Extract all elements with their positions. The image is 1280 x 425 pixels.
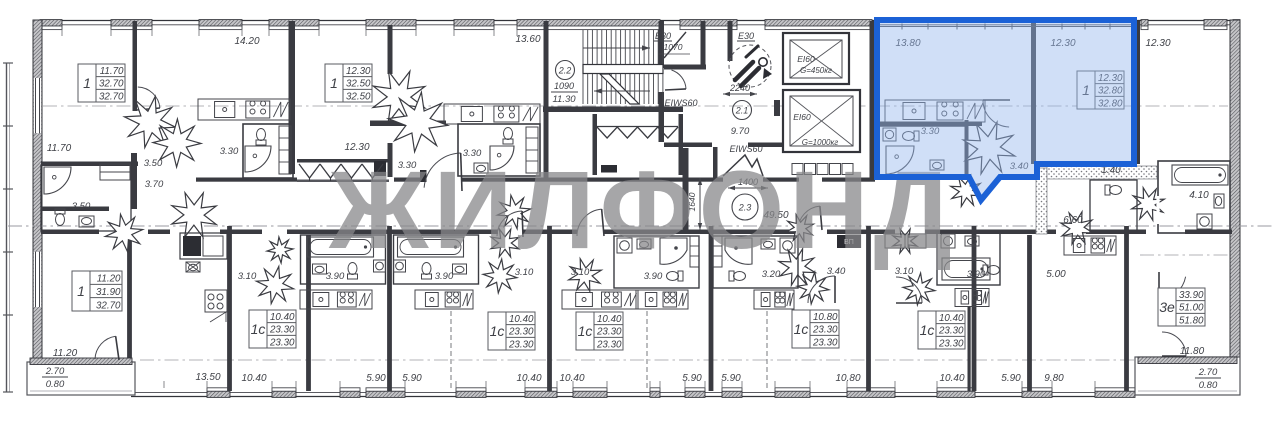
svg-text:ЕІ60: ЕІ60	[793, 112, 811, 122]
svg-text:5.90: 5.90	[366, 373, 386, 384]
svg-text:3.90: 3.90	[326, 271, 345, 282]
svg-text:10.80: 10.80	[835, 373, 860, 384]
svg-text:Е30: Е30	[655, 31, 671, 41]
svg-text:11.20: 11.20	[53, 348, 78, 359]
svg-text:11.20: 11.20	[97, 274, 121, 285]
svg-text:3.90: 3.90	[644, 271, 663, 282]
svg-text:23.30: 23.30	[938, 338, 964, 349]
svg-text:2.70: 2.70	[1198, 367, 1218, 378]
svg-text:23.30: 23.30	[596, 327, 622, 338]
svg-text:12.30: 12.30	[1145, 38, 1170, 49]
svg-text:1: 1	[77, 283, 85, 299]
svg-text:1090: 1090	[554, 81, 574, 91]
svg-text:23.30: 23.30	[938, 326, 964, 337]
svg-text:23.30: 23.30	[508, 327, 534, 338]
svg-text:10.40: 10.40	[516, 373, 541, 384]
svg-text:10.40: 10.40	[509, 314, 534, 325]
svg-text:23.30: 23.30	[508, 339, 534, 350]
svg-text:32.70: 32.70	[99, 79, 124, 90]
svg-text:5.90: 5.90	[682, 373, 702, 384]
svg-text:23.30: 23.30	[812, 337, 838, 348]
svg-text:2.70: 2.70	[45, 366, 65, 377]
svg-text:5.90: 5.90	[721, 373, 741, 384]
svg-text:ЖИЛФОНД: ЖИЛФОНД	[328, 149, 957, 272]
svg-text:1с: 1с	[794, 321, 809, 337]
svg-text:23.30: 23.30	[269, 325, 295, 336]
svg-text:3.90: 3.90	[967, 269, 986, 280]
svg-text:2240: 2240	[729, 83, 750, 93]
svg-text:23.30: 23.30	[596, 339, 622, 350]
svg-text:1: 1	[330, 75, 338, 91]
svg-text:11.70: 11.70	[100, 66, 124, 77]
svg-text:10.80: 10.80	[813, 312, 838, 323]
svg-text:51.00: 51.00	[1179, 303, 1204, 314]
svg-text:51.80: 51.80	[1179, 315, 1204, 326]
svg-text:11.30: 11.30	[552, 94, 576, 105]
svg-text:5.90: 5.90	[1001, 373, 1021, 384]
svg-text:ЕІ60: ЕІ60	[797, 54, 815, 64]
svg-text:10.40: 10.40	[939, 313, 964, 324]
svg-text:10.40: 10.40	[597, 314, 622, 325]
svg-text:3.70: 3.70	[145, 179, 164, 190]
svg-text:31.90: 31.90	[96, 287, 121, 298]
svg-text:0.80: 0.80	[1199, 380, 1218, 391]
svg-text:3е: 3е	[1159, 299, 1175, 315]
svg-text:1: 1	[83, 75, 91, 91]
svg-text:10.40: 10.40	[241, 373, 266, 384]
svg-text:23.30: 23.30	[269, 337, 295, 348]
svg-text:1с: 1с	[920, 322, 935, 338]
svg-text:13.60: 13.60	[515, 34, 540, 45]
svg-text:32.50: 32.50	[346, 91, 371, 102]
svg-text:G=450кг: G=450кг	[800, 66, 832, 75]
svg-text:Е30: Е30	[738, 31, 754, 41]
svg-text:9.70: 9.70	[731, 126, 750, 137]
svg-text:1070: 1070	[664, 42, 683, 52]
svg-text:G=1000кг: G=1000кг	[802, 138, 838, 147]
svg-text:32.50: 32.50	[346, 79, 371, 90]
svg-text:4.10: 4.10	[1189, 190, 1209, 201]
svg-text:2.1: 2.1	[735, 106, 749, 116]
svg-text:23.30: 23.30	[812, 325, 838, 336]
svg-text:3.10: 3.10	[238, 271, 257, 282]
svg-text:5.00: 5.00	[1046, 269, 1066, 280]
svg-text:6.60: 6.60	[1063, 215, 1083, 226]
svg-text:1с: 1с	[251, 321, 266, 337]
svg-text:2.2: 2.2	[558, 66, 572, 76]
svg-text:32.70: 32.70	[99, 91, 124, 102]
svg-text:3.90: 3.90	[435, 271, 454, 282]
svg-text:11.80: 11.80	[1180, 346, 1205, 357]
svg-text:11.70: 11.70	[47, 143, 72, 154]
svg-text:0.80: 0.80	[46, 379, 65, 390]
svg-text:9.80: 9.80	[1044, 373, 1064, 384]
svg-text:3.50: 3.50	[72, 201, 91, 212]
svg-text:5.90: 5.90	[402, 373, 422, 384]
svg-text:14.20: 14.20	[234, 36, 259, 47]
svg-text:12.30: 12.30	[346, 66, 371, 77]
svg-text:10.40: 10.40	[559, 373, 584, 384]
svg-text:10.40: 10.40	[939, 373, 964, 384]
svg-text:3.30: 3.30	[220, 146, 239, 157]
svg-text:32.70: 32.70	[96, 300, 121, 311]
svg-text:1с: 1с	[490, 323, 505, 339]
svg-text:1с: 1с	[578, 323, 593, 339]
svg-text:33.90: 33.90	[1179, 290, 1204, 301]
svg-text:10.40: 10.40	[270, 312, 295, 323]
svg-text:13.50: 13.50	[195, 372, 220, 383]
svg-text:ЕІWS60: ЕІWS60	[664, 98, 697, 108]
